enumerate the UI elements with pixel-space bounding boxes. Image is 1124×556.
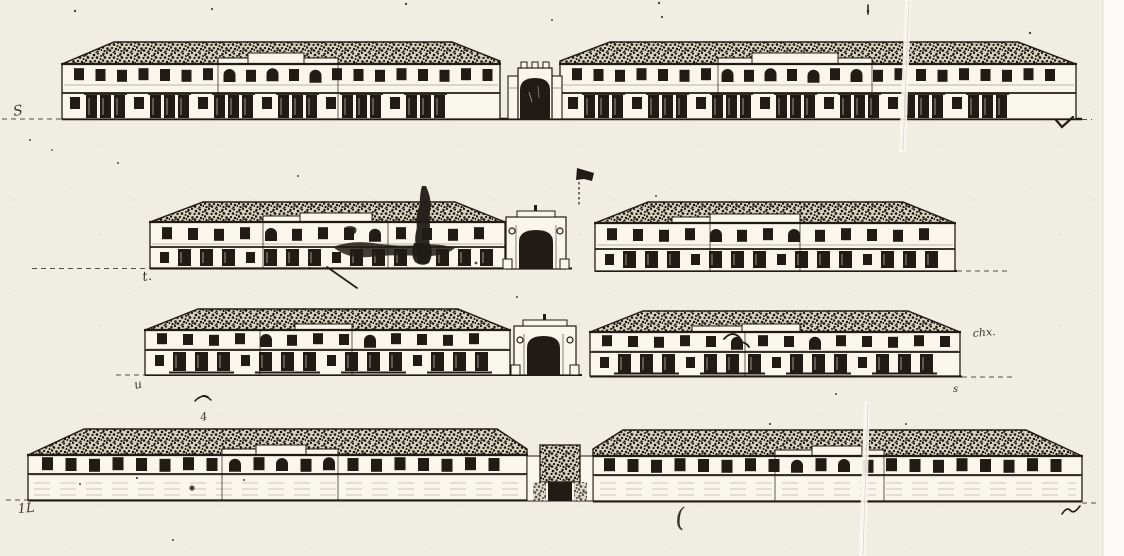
doorway-opening xyxy=(222,249,235,266)
building-wing-left xyxy=(144,309,511,375)
elevation-second xyxy=(32,202,1008,271)
window xyxy=(572,68,582,80)
window xyxy=(981,69,991,81)
gate-cap xyxy=(523,320,567,326)
doorway-opening xyxy=(164,95,175,118)
window xyxy=(914,335,924,346)
window xyxy=(461,68,471,80)
gate-plinth xyxy=(503,259,512,269)
window xyxy=(696,97,706,109)
gate-tower xyxy=(540,445,580,482)
doorway-opening xyxy=(996,95,1007,118)
window xyxy=(182,70,192,82)
window xyxy=(568,97,578,109)
doorway-opening xyxy=(178,249,191,266)
doorway-opening xyxy=(932,95,943,118)
window xyxy=(74,68,84,80)
gate-door xyxy=(548,482,572,501)
window xyxy=(651,460,662,473)
doorway-opening xyxy=(804,95,815,118)
doorway-opening xyxy=(480,249,493,266)
window xyxy=(772,357,781,368)
doorway-opening xyxy=(712,95,723,118)
window xyxy=(787,69,797,81)
roof-parapet xyxy=(300,213,372,222)
doorway-opening xyxy=(881,251,894,268)
gate-plinth xyxy=(511,365,520,375)
ink-speck xyxy=(769,423,771,425)
ink-speck xyxy=(29,139,31,141)
doorway-opening xyxy=(898,354,911,373)
doorway-opening xyxy=(356,95,367,118)
doorway-opening xyxy=(178,95,189,118)
doorway-opening xyxy=(920,354,933,373)
window xyxy=(744,70,754,82)
window xyxy=(397,68,407,80)
window xyxy=(1051,459,1062,472)
window xyxy=(139,68,149,80)
gate-finial xyxy=(534,205,537,211)
window xyxy=(680,335,690,346)
doorway-opening xyxy=(854,95,865,118)
ink-speck xyxy=(516,296,518,298)
ink-speck xyxy=(117,162,119,164)
arched-window xyxy=(364,335,376,348)
window xyxy=(957,458,968,471)
window xyxy=(313,333,323,344)
window xyxy=(287,335,297,346)
window xyxy=(919,228,929,240)
window xyxy=(604,458,615,471)
window xyxy=(1045,69,1055,81)
window xyxy=(836,335,846,346)
window xyxy=(254,457,265,470)
window xyxy=(188,228,198,240)
building-wing-left xyxy=(149,202,506,268)
roof-parapet xyxy=(710,214,800,223)
doorway-opening xyxy=(114,95,125,118)
window xyxy=(160,252,169,263)
doorway-opening xyxy=(790,354,803,373)
doorway-opening xyxy=(342,95,353,118)
arched-window xyxy=(267,68,279,81)
doorway-opening xyxy=(623,251,636,268)
window xyxy=(680,70,690,82)
doorway-opening xyxy=(839,251,852,268)
ink-speck xyxy=(551,19,553,21)
window xyxy=(289,69,299,81)
window xyxy=(375,70,385,82)
window xyxy=(600,357,609,368)
window xyxy=(198,97,208,109)
building-wing-left xyxy=(61,42,501,119)
window xyxy=(246,252,255,263)
doorway-opening xyxy=(389,352,402,371)
window xyxy=(214,229,224,241)
window xyxy=(886,458,897,471)
building-wing-right xyxy=(594,202,956,271)
window xyxy=(691,254,700,265)
window xyxy=(354,69,364,81)
window xyxy=(262,97,272,109)
window xyxy=(418,69,428,81)
window xyxy=(42,457,53,470)
doorway-opening xyxy=(753,251,766,268)
window xyxy=(607,228,617,240)
window xyxy=(489,458,500,471)
doorway-opening xyxy=(345,352,358,371)
doorway-opening xyxy=(618,354,631,373)
window xyxy=(483,69,493,81)
window xyxy=(602,335,612,346)
doorway-opening xyxy=(918,95,929,118)
arched-window xyxy=(369,229,381,242)
scanned-page: St.u1Lchx.s(4 xyxy=(0,0,1124,556)
building-wing-right xyxy=(589,311,961,376)
window xyxy=(465,457,476,470)
doorway-opening xyxy=(214,95,225,118)
doorway-opening xyxy=(292,95,303,118)
window xyxy=(675,458,686,471)
gate-archway xyxy=(520,78,550,119)
window xyxy=(830,68,840,80)
window xyxy=(390,97,400,109)
window xyxy=(448,229,458,241)
window xyxy=(816,458,827,471)
doorway-opening xyxy=(584,95,595,118)
arched-window xyxy=(788,229,800,242)
window xyxy=(615,70,625,82)
doorway-opening xyxy=(776,95,787,118)
window xyxy=(70,97,80,109)
doorway-opening xyxy=(726,95,737,118)
doorway-opening xyxy=(308,249,321,266)
window xyxy=(332,68,342,80)
window xyxy=(685,228,695,240)
arched-window xyxy=(809,337,821,350)
window xyxy=(858,357,867,368)
window xyxy=(183,457,194,470)
window xyxy=(241,355,250,366)
doorway-opening xyxy=(228,95,239,118)
window xyxy=(763,228,773,240)
window xyxy=(940,336,950,347)
doorway-opening xyxy=(173,352,186,371)
handwritten-mark-mark-1l-bottom-left: 1L xyxy=(17,501,35,517)
window xyxy=(246,70,256,82)
gate-archway xyxy=(527,336,560,375)
window xyxy=(863,254,872,265)
building-wing-right xyxy=(592,430,1083,501)
doorway-opening xyxy=(306,95,317,118)
window xyxy=(873,70,883,82)
window xyxy=(235,333,245,344)
window xyxy=(888,97,898,109)
window xyxy=(841,228,851,240)
window xyxy=(417,334,427,345)
window xyxy=(658,69,668,81)
window xyxy=(391,333,401,344)
doorway-opening xyxy=(790,95,801,118)
ink-speck xyxy=(172,539,174,541)
doorway-opening xyxy=(86,95,97,118)
window xyxy=(134,97,144,109)
window xyxy=(628,459,639,472)
window xyxy=(209,335,219,346)
window xyxy=(160,459,171,472)
window xyxy=(701,68,711,80)
doorway-opening xyxy=(264,249,277,266)
window xyxy=(637,68,647,80)
window xyxy=(117,70,127,82)
doorway-opening xyxy=(662,354,675,373)
doorway-opening xyxy=(868,95,879,118)
window xyxy=(959,68,969,80)
window xyxy=(686,357,695,368)
doorway-opening xyxy=(598,95,609,118)
gate-pier xyxy=(508,76,518,119)
doorway-opening xyxy=(982,95,993,118)
roof-parapet xyxy=(812,446,862,456)
gate-finial xyxy=(543,314,546,320)
doorway-opening xyxy=(731,251,744,268)
doorway-opening xyxy=(195,352,208,371)
window xyxy=(207,458,218,471)
doorway-opening xyxy=(281,352,294,371)
window xyxy=(155,355,164,366)
ink-speck xyxy=(661,16,663,18)
gate-plinth xyxy=(570,365,579,375)
arched-window xyxy=(229,459,241,472)
doorway-opening xyxy=(286,249,299,266)
window xyxy=(396,227,406,239)
ink-speck xyxy=(51,149,53,151)
doorway-opening xyxy=(475,352,488,371)
window xyxy=(980,459,991,472)
arched-window xyxy=(260,334,272,347)
window xyxy=(784,336,794,347)
window xyxy=(910,459,921,472)
doorway-opening xyxy=(453,352,466,371)
window xyxy=(632,97,642,109)
window xyxy=(348,458,359,471)
ink-speck xyxy=(74,10,76,12)
window xyxy=(862,336,872,347)
page-edge xyxy=(1103,0,1124,556)
window xyxy=(418,458,429,471)
arched-window xyxy=(838,459,850,472)
doorway-opening xyxy=(640,354,653,373)
roof-parapet xyxy=(248,53,304,64)
doorway-opening xyxy=(748,354,761,373)
doorway-opening xyxy=(278,95,289,118)
ink-speck xyxy=(658,2,660,4)
window xyxy=(867,229,877,241)
window xyxy=(326,97,336,109)
gate-archway xyxy=(519,230,553,269)
window xyxy=(113,457,124,470)
window xyxy=(1024,68,1034,80)
window xyxy=(628,336,638,347)
doorway-opening xyxy=(840,95,851,118)
doorway-opening xyxy=(645,251,658,268)
window xyxy=(474,227,484,239)
window xyxy=(469,333,479,344)
window xyxy=(605,254,614,265)
ink-speck xyxy=(475,262,478,265)
ink-speck xyxy=(211,8,213,10)
window xyxy=(66,458,77,471)
window xyxy=(777,254,786,265)
window xyxy=(240,227,250,239)
doorway-opening xyxy=(903,251,916,268)
window xyxy=(654,337,664,348)
window xyxy=(203,68,213,80)
crenellation xyxy=(521,62,527,68)
ink-speck xyxy=(905,423,907,425)
window xyxy=(160,69,170,81)
doorway-opening xyxy=(968,95,979,118)
window xyxy=(888,337,898,348)
arched-window xyxy=(224,69,236,82)
window xyxy=(938,70,948,82)
ink-speck xyxy=(79,483,81,485)
handwritten-mark-mark-s-row3-right: s xyxy=(953,384,958,395)
doorway-opening xyxy=(150,95,161,118)
doorway-opening xyxy=(834,354,847,373)
window xyxy=(722,460,733,473)
arched-window xyxy=(265,228,277,241)
window xyxy=(1027,458,1038,471)
window xyxy=(698,459,709,472)
arched-window xyxy=(808,70,820,83)
arched-window xyxy=(276,458,288,471)
window xyxy=(157,333,167,344)
crenellation xyxy=(532,62,538,68)
ink-speck xyxy=(189,485,194,490)
window xyxy=(136,458,147,471)
window xyxy=(395,457,406,470)
window xyxy=(706,336,716,347)
window xyxy=(760,97,770,109)
ink-speck xyxy=(297,175,299,177)
arched-window xyxy=(791,460,803,473)
doorway-opening xyxy=(709,251,722,268)
window xyxy=(292,229,302,241)
window xyxy=(413,355,422,366)
window xyxy=(371,459,382,472)
doorway-opening xyxy=(406,95,417,118)
window xyxy=(332,252,341,263)
window xyxy=(327,355,336,366)
doorway-opening xyxy=(420,95,431,118)
building-wing-right xyxy=(559,42,1077,119)
doorway-opening xyxy=(704,354,717,373)
window xyxy=(339,334,349,345)
window xyxy=(1004,460,1015,473)
doorway-opening xyxy=(259,352,272,371)
doorway-opening xyxy=(367,352,380,371)
doorway-opening xyxy=(676,95,687,118)
gate-pier xyxy=(552,76,562,119)
arched-window xyxy=(851,69,863,82)
doorway-opening xyxy=(370,95,381,118)
ink-speck xyxy=(867,10,870,13)
doorway-opening xyxy=(100,95,111,118)
roof-parapet xyxy=(256,445,306,455)
doorway-opening xyxy=(795,251,808,268)
ink-speck xyxy=(243,479,245,481)
window xyxy=(89,459,100,472)
arched-window xyxy=(310,70,322,83)
window xyxy=(933,460,944,473)
window xyxy=(758,335,768,346)
window xyxy=(318,227,328,239)
arched-window xyxy=(323,457,335,470)
doorway-opening xyxy=(812,354,825,373)
window xyxy=(440,70,450,82)
doorway-opening xyxy=(662,95,673,118)
doorway-opening xyxy=(876,354,889,373)
doorway-opening xyxy=(925,251,938,268)
arched-window xyxy=(710,229,722,242)
doorway-opening xyxy=(303,352,316,371)
doorway-opening xyxy=(817,251,830,268)
handwritten-mark-mark-chx-row3-right: chx. xyxy=(972,325,996,340)
ink-speck xyxy=(655,195,657,197)
window xyxy=(594,69,604,81)
window xyxy=(737,230,747,242)
doorway-opening xyxy=(648,95,659,118)
window xyxy=(96,69,106,81)
arched-window xyxy=(765,68,777,81)
window xyxy=(442,459,453,472)
doorway-opening xyxy=(726,354,739,373)
window xyxy=(815,230,825,242)
ink-speck xyxy=(835,393,837,395)
window xyxy=(824,97,834,109)
window xyxy=(745,458,756,471)
doorway-opening xyxy=(458,249,471,266)
ink-speck xyxy=(136,477,138,479)
window xyxy=(301,459,312,472)
arched-window xyxy=(722,69,734,82)
window xyxy=(952,97,962,109)
window xyxy=(916,69,926,81)
crenellation xyxy=(543,62,549,68)
doorway-opening xyxy=(434,95,445,118)
ink-speck xyxy=(1029,32,1031,34)
window xyxy=(443,335,453,346)
window xyxy=(162,227,172,239)
window xyxy=(659,230,669,242)
roof-parapet xyxy=(752,53,838,64)
roof-parapet xyxy=(742,324,800,332)
gate-plinth xyxy=(560,259,569,269)
window xyxy=(893,230,903,242)
doorway-opening xyxy=(200,249,213,266)
window xyxy=(1002,70,1012,82)
doorway-opening xyxy=(612,95,623,118)
window xyxy=(633,229,643,241)
ink-speck xyxy=(309,267,311,269)
ink-speck xyxy=(405,3,407,5)
doorway-opening xyxy=(431,352,444,371)
doorway-opening xyxy=(740,95,751,118)
doorway-opening xyxy=(217,352,230,371)
doorway-opening xyxy=(667,251,680,268)
window xyxy=(769,459,780,472)
